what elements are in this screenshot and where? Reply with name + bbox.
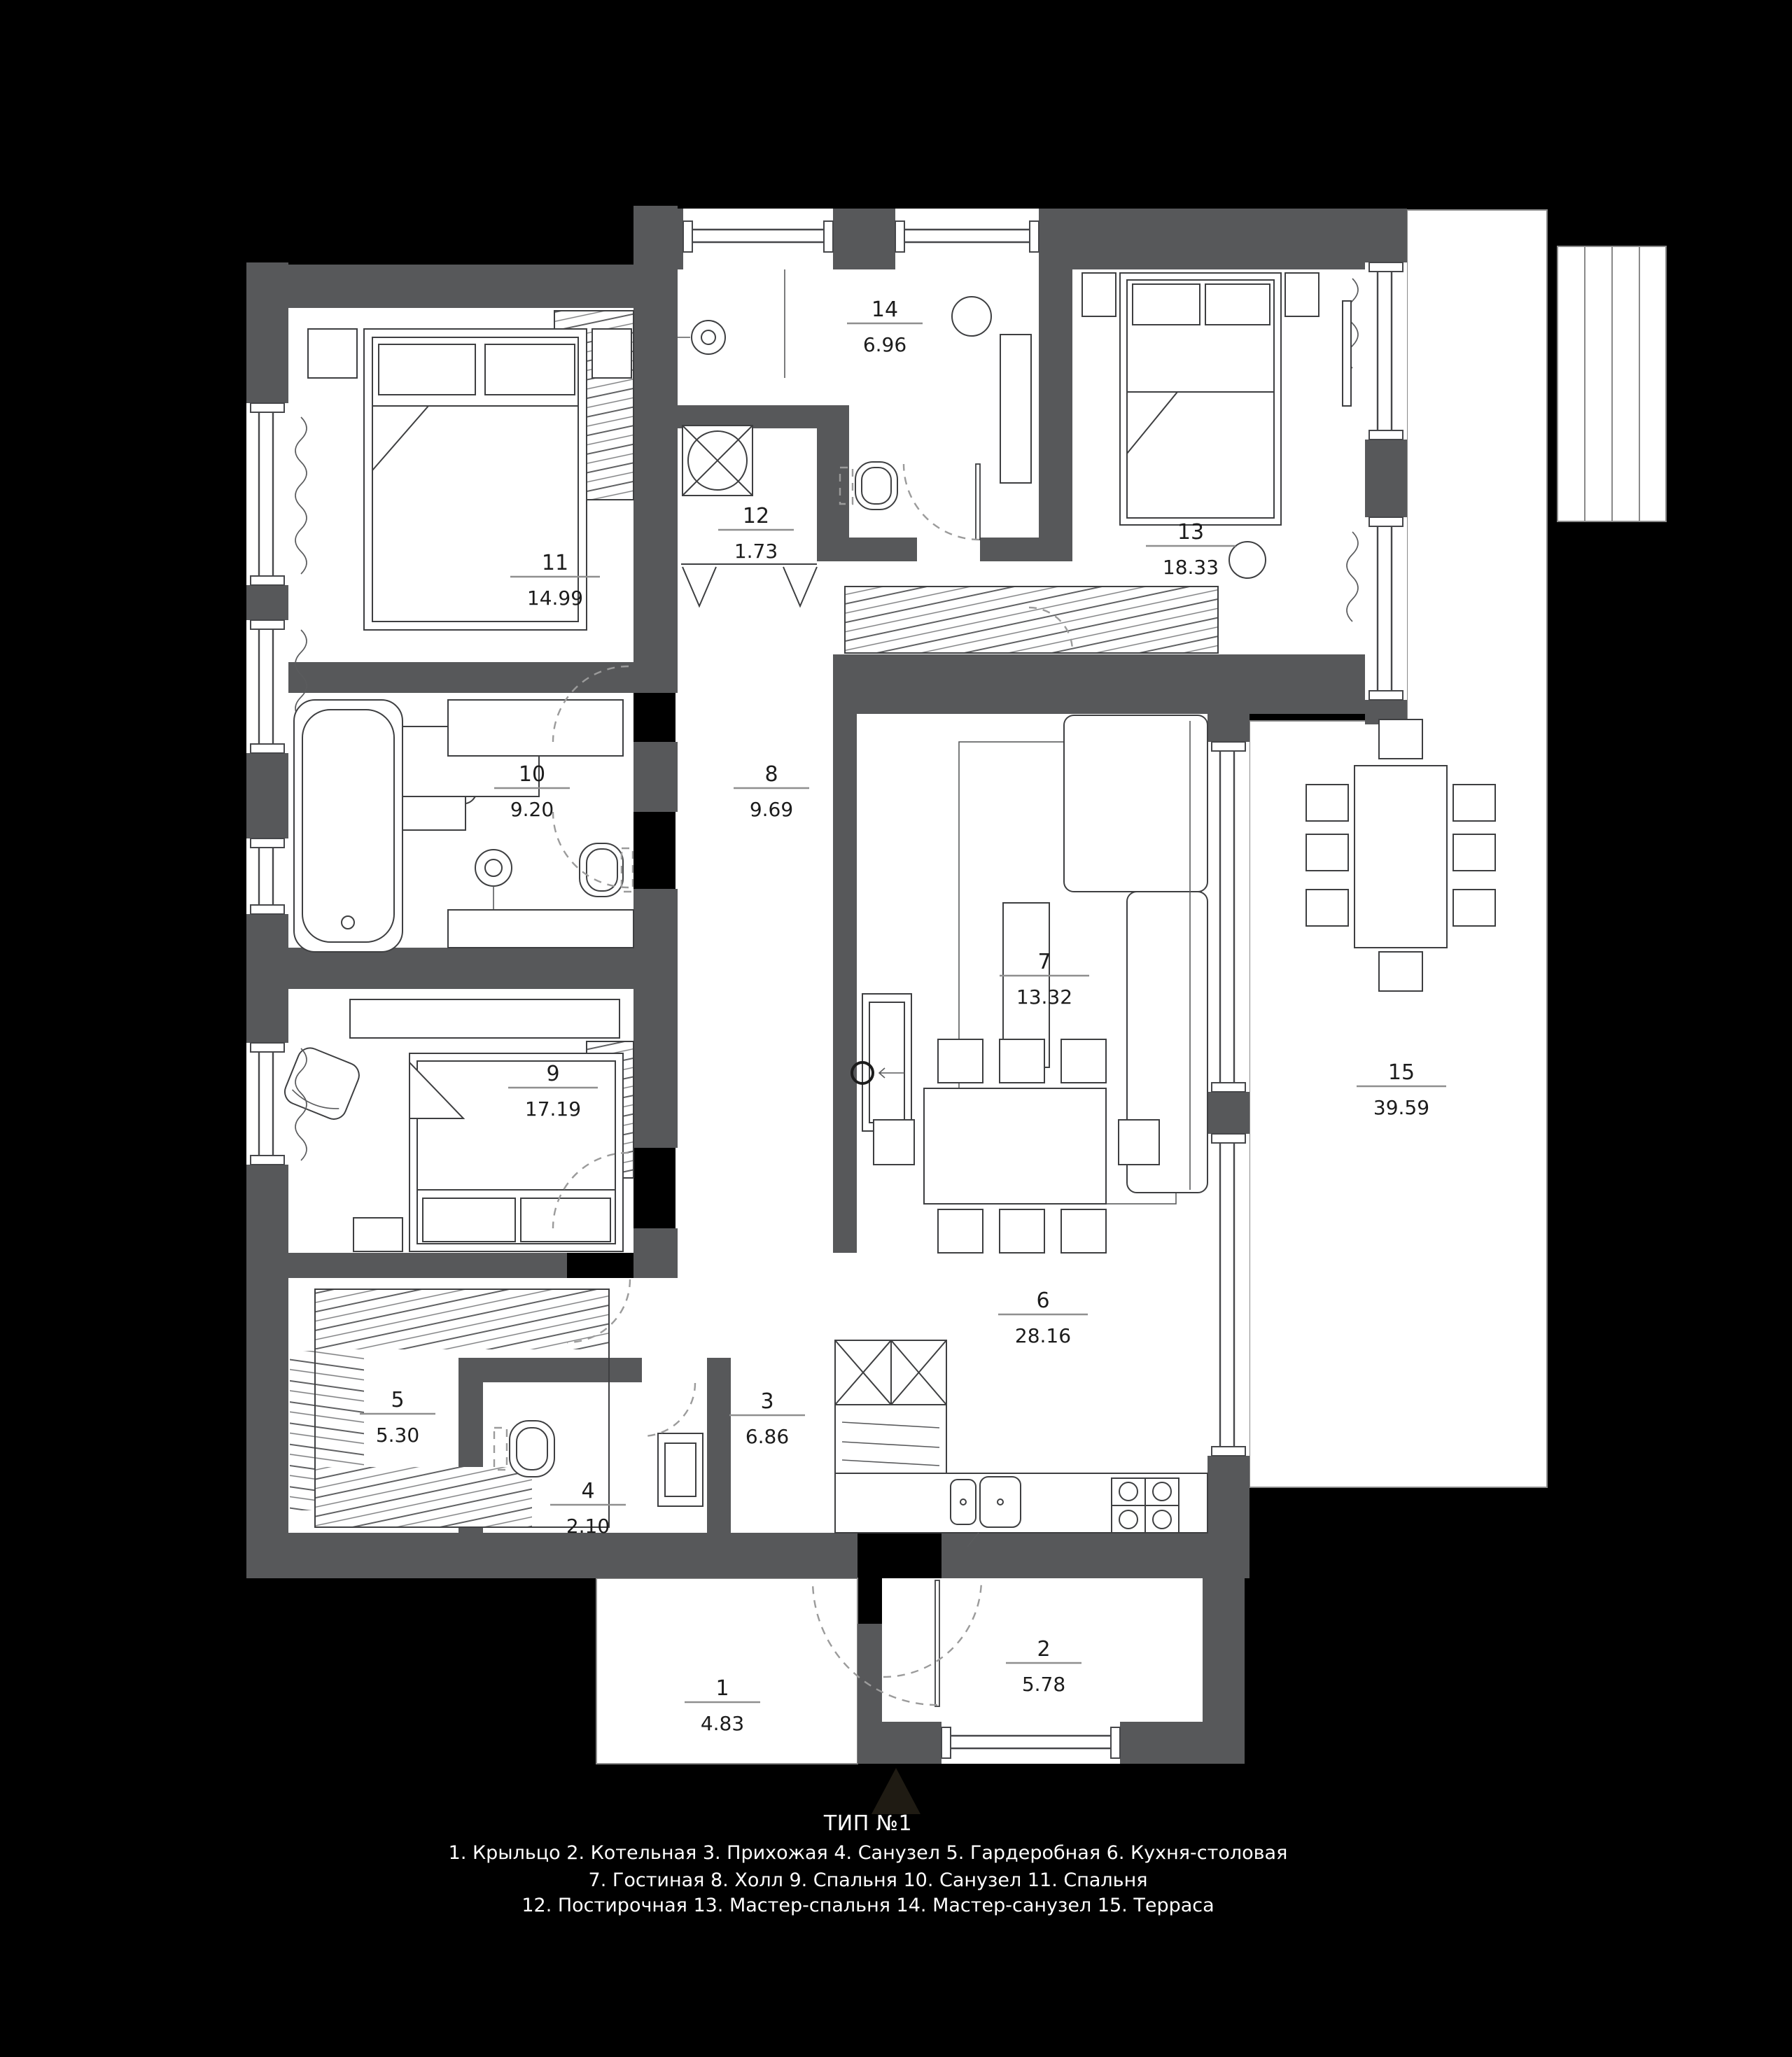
svg-text:9.20: 9.20 xyxy=(510,798,554,821)
desk-room9 xyxy=(350,999,619,1038)
svg-text:6.86: 6.86 xyxy=(745,1425,789,1448)
bathroom-shelf xyxy=(448,700,623,756)
svg-text:13: 13 xyxy=(1177,520,1204,545)
legend-line-3: 12. Постирочная 13. Мастер-спальня 14. М… xyxy=(0,1895,1736,1916)
svg-text:9: 9 xyxy=(546,1062,559,1086)
window-room9 xyxy=(246,1043,288,1165)
svg-text:8: 8 xyxy=(764,762,778,787)
window-room11-a xyxy=(246,403,288,585)
cabinet-room14 xyxy=(1000,335,1031,483)
window-room11-b xyxy=(246,620,288,753)
svg-text:5.30: 5.30 xyxy=(376,1424,419,1447)
svg-text:17.19: 17.19 xyxy=(525,1097,581,1121)
svg-text:13.32: 13.32 xyxy=(1016,985,1072,1009)
svg-text:5: 5 xyxy=(391,1388,404,1412)
plan-canvas: 1 4.83 2 5.78 3 6.86 4 2.10 5 5.30 6 28.… xyxy=(0,0,1792,2057)
svg-text:9.69: 9.69 xyxy=(750,798,793,821)
svg-text:6: 6 xyxy=(1036,1289,1049,1313)
svg-text:14: 14 xyxy=(871,297,898,322)
curtain-rail xyxy=(1343,301,1351,406)
entrance-arrow-icon xyxy=(871,1768,920,1814)
nightstand xyxy=(1082,273,1116,316)
porch-floor xyxy=(596,1578,857,1764)
svg-text:2: 2 xyxy=(1037,1637,1050,1662)
washing-machine-icon xyxy=(682,426,752,496)
window-room10 xyxy=(246,838,288,914)
svg-text:4: 4 xyxy=(581,1479,594,1503)
kitchen-cabinets xyxy=(835,1340,946,1473)
vanity-room10 xyxy=(448,910,633,948)
svg-text:4.83: 4.83 xyxy=(701,1712,744,1735)
svg-text:39.59: 39.59 xyxy=(1373,1096,1429,1119)
bathtub-icon xyxy=(294,700,402,952)
nightstand xyxy=(592,329,631,378)
floor-plan-page: { "legend": { "title": "ТИП №1", "line1"… xyxy=(0,0,1792,2057)
svg-text:5.78: 5.78 xyxy=(1022,1673,1065,1696)
nightstand xyxy=(308,329,357,378)
svg-text:15: 15 xyxy=(1388,1060,1415,1085)
svg-text:1.73: 1.73 xyxy=(734,540,778,563)
svg-text:10: 10 xyxy=(519,762,545,787)
window-room13-b xyxy=(1365,517,1407,700)
svg-text:18.33: 18.33 xyxy=(1163,556,1219,579)
svg-text:2.10: 2.10 xyxy=(566,1515,610,1538)
window-room13-a xyxy=(1365,262,1407,440)
window-room14-top-b xyxy=(895,209,1039,269)
legend-title: ТИП №1 xyxy=(0,1811,1736,1836)
svg-text:11: 11 xyxy=(542,551,568,575)
nightstand xyxy=(353,1218,402,1251)
svg-text:28.16: 28.16 xyxy=(1015,1324,1071,1347)
window-room14-top-a xyxy=(683,209,833,269)
nightstand xyxy=(1285,273,1319,316)
svg-text:3: 3 xyxy=(760,1389,773,1414)
svg-text:12: 12 xyxy=(743,504,769,528)
stove-icon xyxy=(1112,1478,1179,1533)
glass-door-kitchen xyxy=(1207,1134,1249,1456)
svg-text:14.99: 14.99 xyxy=(527,587,583,610)
glass-door-living xyxy=(1207,742,1249,1092)
wardrobe-room13-band xyxy=(845,587,1218,653)
svg-text:6.96: 6.96 xyxy=(863,333,906,356)
legend-line-2: 7. Гостиная 8. Холл 9. Спальня 10. Сануз… xyxy=(0,1869,1736,1891)
svg-text:1: 1 xyxy=(715,1676,729,1701)
legend-line-1: 1. Крыльцо 2. Котельная 3. Прихожая 4. С… xyxy=(0,1842,1736,1864)
washbasin-room4 xyxy=(658,1433,703,1506)
svg-text:7: 7 xyxy=(1037,950,1051,974)
